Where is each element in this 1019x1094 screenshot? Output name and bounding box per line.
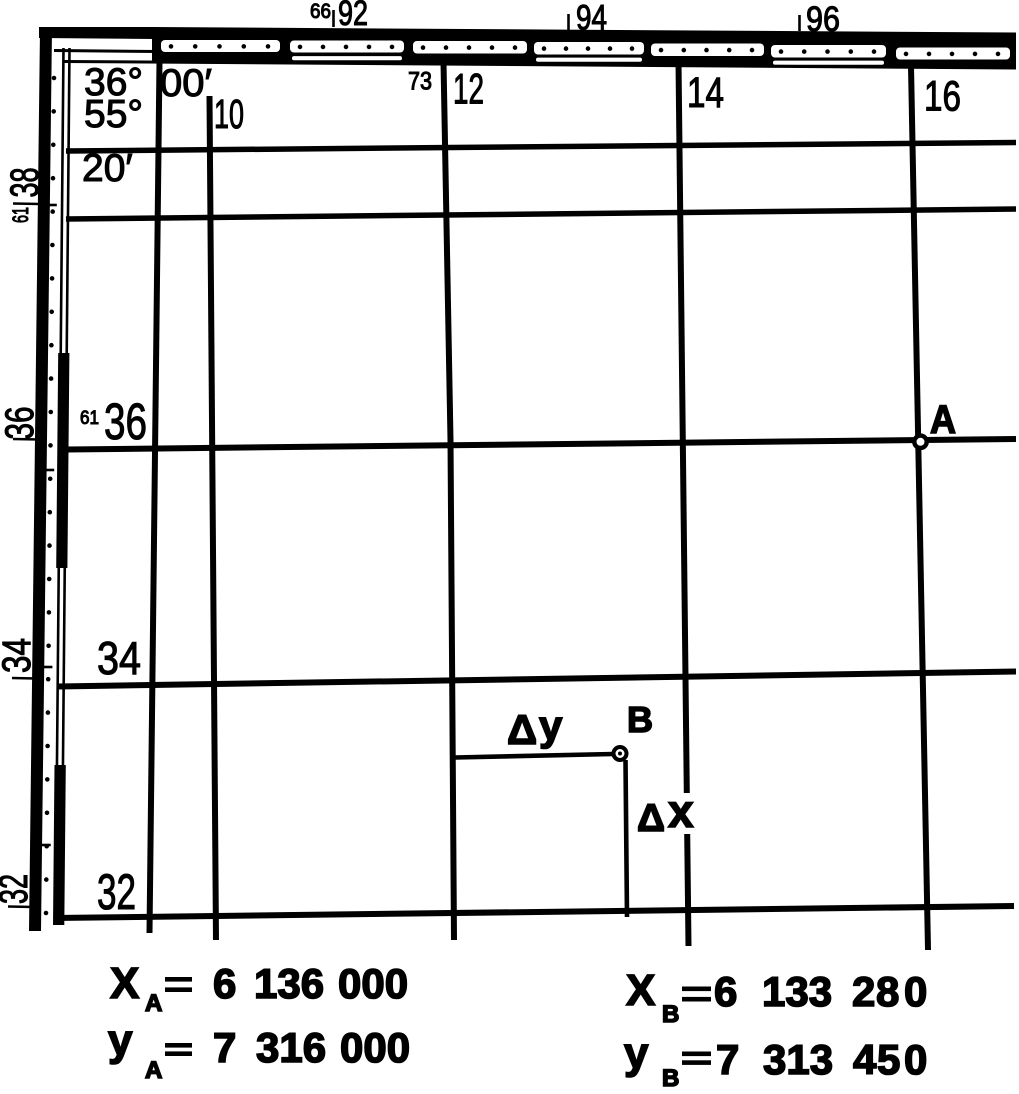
svg-text:Δ: Δ [637, 797, 665, 840]
svg-text:00′: 00′ [160, 62, 212, 105]
svg-text:X: X [110, 959, 139, 1008]
svg-text:000: 000 [340, 1024, 410, 1071]
svg-text:38: 38 [3, 168, 47, 198]
svg-text:36: 36 [0, 407, 42, 440]
svg-text:2: 2 [852, 968, 875, 1015]
svg-text:32: 32 [97, 864, 136, 920]
svg-text:0: 0 [904, 1036, 927, 1083]
svg-text:66: 66 [310, 0, 331, 23]
svg-text:A: A [145, 1057, 162, 1084]
svg-text:B: B [662, 1065, 679, 1089]
svg-text:14: 14 [687, 69, 724, 117]
svg-text:34: 34 [0, 638, 39, 673]
svg-text:B: B [627, 699, 653, 740]
svg-text:4: 4 [853, 1036, 877, 1083]
svg-text:34: 34 [97, 632, 141, 684]
svg-text:7: 7 [716, 1036, 739, 1083]
svg-text:X: X [626, 966, 655, 1015]
svg-text:x: x [668, 785, 694, 837]
svg-text:0: 0 [904, 968, 927, 1015]
svg-text:A: A [930, 398, 956, 442]
svg-text:136: 136 [254, 960, 324, 1007]
svg-text:6: 6 [213, 960, 236, 1007]
svg-text:12: 12 [453, 66, 484, 114]
svg-text:Δ: Δ [507, 706, 537, 753]
svg-text:73: 73 [408, 68, 432, 96]
svg-text:94: 94 [576, 0, 607, 38]
svg-text:133: 133 [762, 968, 832, 1015]
svg-text:y: y [624, 1029, 649, 1078]
svg-text:16: 16 [924, 73, 961, 121]
svg-text:y: y [108, 1016, 133, 1065]
svg-text:10: 10 [214, 91, 244, 137]
svg-text:55°: 55° [84, 93, 143, 136]
svg-text:36: 36 [104, 393, 147, 450]
svg-text:000: 000 [338, 960, 408, 1007]
svg-text:32: 32 [0, 874, 36, 904]
svg-text:6: 6 [714, 968, 737, 1015]
svg-text:313: 313 [763, 1036, 833, 1083]
svg-text:96: 96 [806, 0, 840, 39]
svg-text:20′: 20′ [82, 147, 133, 190]
svg-text:5: 5 [877, 1036, 900, 1083]
svg-text:316: 316 [256, 1024, 326, 1071]
svg-text:61: 61 [80, 408, 99, 429]
svg-text:92: 92 [338, 0, 368, 33]
svg-text:7: 7 [213, 1024, 236, 1071]
svg-text:61: 61 [8, 207, 33, 223]
svg-text:8: 8 [876, 968, 899, 1015]
svg-text:B: B [662, 1001, 679, 1028]
svg-text:y: y [539, 702, 563, 749]
svg-text:A: A [145, 990, 162, 1017]
